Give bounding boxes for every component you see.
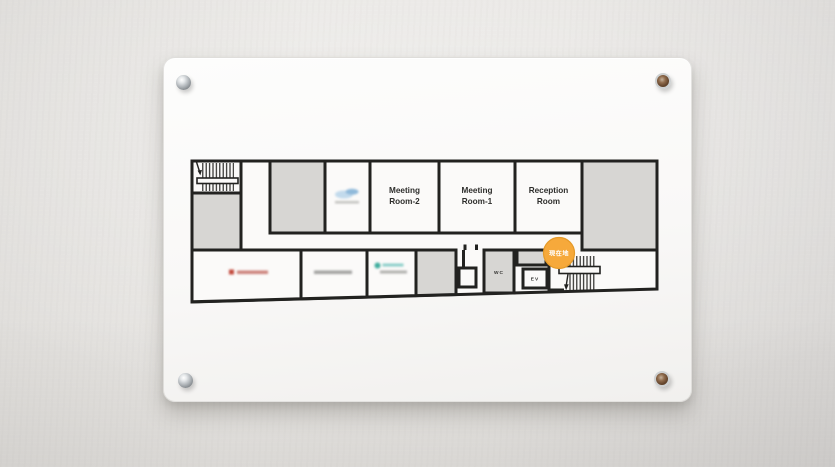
gray-room	[192, 193, 241, 250]
stairs-treads	[201, 163, 234, 178]
gray-room	[582, 161, 657, 250]
tenant-room-gray-logo	[301, 250, 367, 299]
room-label-reception-line2: Room	[537, 197, 560, 206]
standoff-screw-icon	[655, 73, 671, 89]
floor-sign-plate: Meeting Room-2 Meeting Room-1 Reception …	[163, 57, 692, 402]
blurred-logo-gray	[314, 271, 352, 275]
blurred-text-line	[335, 201, 359, 204]
stairs-icon	[197, 162, 239, 191]
floor-plan-map: Meeting Room-2 Meeting Room-1 Reception …	[188, 157, 661, 305]
you-are-here-label: 現在地	[549, 250, 569, 258]
logo-shape	[229, 270, 234, 275]
room-label-ev: EV	[531, 277, 539, 283]
gray-room	[416, 250, 456, 296]
logo-shape	[375, 263, 381, 269]
room-label-meeting-2-line2: Room-2	[389, 197, 420, 206]
gray-closet	[517, 250, 546, 265]
small-room	[459, 268, 476, 287]
blurred-text-line	[237, 271, 268, 275]
standoff-screw-icon	[654, 371, 670, 387]
room-label-reception-line1: Reception	[529, 186, 569, 195]
wall-background: Meeting Room-2 Meeting Room-1 Reception …	[0, 0, 835, 467]
stairs-treads	[201, 184, 234, 192]
standoff-screw-icon	[178, 373, 193, 388]
blurred-text-line	[383, 264, 404, 267]
room-label-meeting-1-line2: Room-1	[462, 197, 493, 206]
logo-shape	[346, 189, 359, 195]
room-label-meeting-2-line1: Meeting	[389, 186, 420, 195]
stairs-landing	[197, 178, 238, 184]
room-label-wc: WC	[494, 270, 504, 276]
gray-room	[270, 161, 325, 233]
standoff-screw-icon	[176, 75, 191, 90]
blurred-text-line	[314, 271, 352, 275]
blurred-text-line	[380, 271, 407, 274]
tenant-room-red-logo	[192, 250, 301, 302]
room-label-meeting-1-line1: Meeting	[462, 186, 493, 195]
